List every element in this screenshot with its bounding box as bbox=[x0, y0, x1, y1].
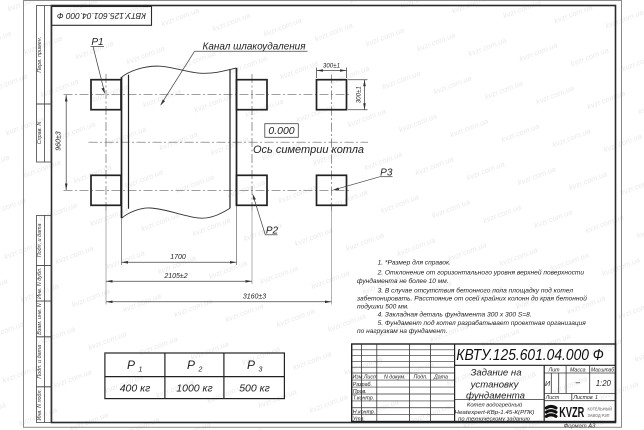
svg-text:И: И bbox=[545, 379, 551, 388]
svg-text:Подп.: Подп. bbox=[414, 375, 428, 381]
svg-text:Пров.: Пров. bbox=[353, 389, 367, 395]
svg-text:КВТУ.125.601.04.000 Ф: КВТУ.125.601.04.000 Ф bbox=[456, 347, 604, 364]
svg-text:0.000: 0.000 bbox=[268, 125, 294, 137]
svg-text:1000 кг: 1000 кг bbox=[176, 382, 212, 394]
svg-text:4. Закладная деталь фундамента: 4. Закладная деталь фундамента 300 x 300… bbox=[378, 311, 532, 319]
svg-text:Подп. и дата: Подп. и дата bbox=[37, 224, 43, 258]
svg-text:300±1: 300±1 bbox=[356, 86, 363, 103]
svg-text:Разраб.: Разраб. bbox=[353, 382, 372, 388]
svg-text:960±3: 960±3 bbox=[56, 131, 63, 151]
svg-text:Лит: Лит bbox=[548, 368, 561, 374]
svg-text:Дата: Дата bbox=[433, 375, 448, 381]
svg-text:по нагрузкам на фундамент.: по нагрузкам на фундамент. bbox=[357, 327, 448, 335]
svg-text:P: P bbox=[187, 358, 195, 372]
svg-text:KVZR: KVZR bbox=[559, 405, 584, 421]
svg-text:КОТЕЛЬНЫЙ: КОТЕЛЬНЫЙ bbox=[588, 407, 613, 412]
svg-text:2105±2: 2105±2 bbox=[163, 273, 187, 280]
svg-text:Перв. примен.: Перв. примен. bbox=[37, 37, 43, 73]
svg-text:по техническому заданию: по техническому заданию bbox=[458, 417, 530, 423]
svg-text:Изм.Лист: Изм.Лист bbox=[353, 375, 379, 381]
svg-text:фундамента не более 10 мм.: фундамента не более 10 мм. bbox=[357, 277, 449, 285]
svg-text:1700: 1700 bbox=[170, 254, 186, 261]
svg-text:3. В случае отсутствия бетонно: 3. В случае отсутствия бетонного пола пл… bbox=[378, 286, 574, 294]
svg-text:–: – bbox=[575, 378, 581, 387]
svg-text:300±1: 300±1 bbox=[323, 62, 340, 69]
svg-text:подушки 500 мм.: подушки 500 мм. bbox=[357, 303, 409, 311]
svg-text:1: 1 bbox=[139, 367, 143, 374]
svg-text:Инв. N дубл.: Инв. N дубл. bbox=[37, 268, 43, 299]
svg-text:фундамента: фундамента bbox=[466, 390, 525, 401]
svg-text:Подп. и дата: Подп. и дата bbox=[37, 345, 43, 379]
svg-text:забетонировать. Расстояние от: забетонировать. Расстояние от осей крайн… bbox=[356, 294, 587, 302]
svg-text:5. Фундамент под котел разраба: 5. Фундамент под котел разрабатывает про… bbox=[378, 319, 587, 327]
svg-text:Масштаб: Масштаб bbox=[591, 368, 615, 374]
svg-text:установку: установку bbox=[470, 379, 520, 390]
svg-text:КВТУ.125.601.04.000 Ф: КВТУ.125.601.04.000 Ф bbox=[57, 11, 146, 20]
svg-text:Инв. N подл.: Инв. N подл. bbox=[37, 389, 43, 421]
svg-text:Задание на: Задание на bbox=[470, 367, 521, 378]
svg-text:Взам. инв. N: Взам. инв. N bbox=[37, 303, 43, 335]
svg-text:2. Отклонение от горизонтально: 2. Отклонение от горизонтального уровня … bbox=[377, 269, 585, 277]
svg-text:Формат А3: Формат А3 bbox=[564, 423, 596, 429]
svg-text:500 кг: 500 кг bbox=[239, 382, 270, 394]
svg-text:Масса: Масса bbox=[570, 368, 586, 374]
svg-text:P: P bbox=[127, 358, 135, 372]
svg-text:P: P bbox=[247, 358, 255, 372]
svg-text:1. *Размер для справок.: 1. *Размер для справок. bbox=[378, 258, 452, 266]
svg-text:Канал шлакоудаления: Канал шлакоудаления bbox=[203, 40, 306, 52]
svg-text:1:20: 1:20 bbox=[596, 379, 612, 388]
svg-text:Т.контр.: Т.контр. bbox=[353, 396, 374, 402]
svg-text:ЗАВОД РЭП: ЗАВОД РЭП bbox=[588, 413, 610, 418]
svg-text:2: 2 bbox=[198, 367, 203, 374]
svg-text:Н.контр.: Н.контр. bbox=[353, 410, 375, 416]
svg-text:Справ. N: Справ. N bbox=[37, 122, 43, 145]
svg-text:3160±3: 3160±3 bbox=[243, 294, 266, 301]
svg-text:1: 1 bbox=[595, 395, 598, 401]
svg-text:Котел водогрейный: Котел водогрейный bbox=[467, 402, 523, 409]
svg-text:Листов: Листов bbox=[572, 395, 593, 401]
svg-text:Heatexpert-КВр-1.45-К(РПК): Heatexpert-КВр-1.45-К(РПК) bbox=[455, 410, 535, 416]
svg-text:Утв.: Утв. bbox=[353, 416, 365, 422]
svg-text:3: 3 bbox=[259, 367, 263, 374]
svg-text:N докум.: N докум. bbox=[384, 375, 405, 381]
svg-text:400 кг: 400 кг bbox=[120, 382, 151, 394]
svg-text:Ось симетрии котла: Ось симетрии котла bbox=[253, 144, 364, 156]
svg-text:Лист: Лист bbox=[545, 395, 560, 401]
